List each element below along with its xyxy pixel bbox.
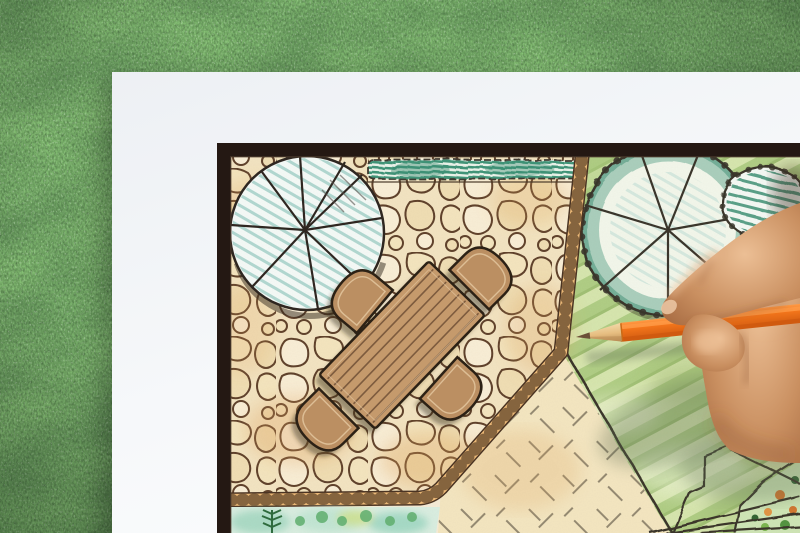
thumbnail xyxy=(694,331,722,353)
photo-scene xyxy=(0,0,800,533)
landscape-plan xyxy=(0,0,800,533)
